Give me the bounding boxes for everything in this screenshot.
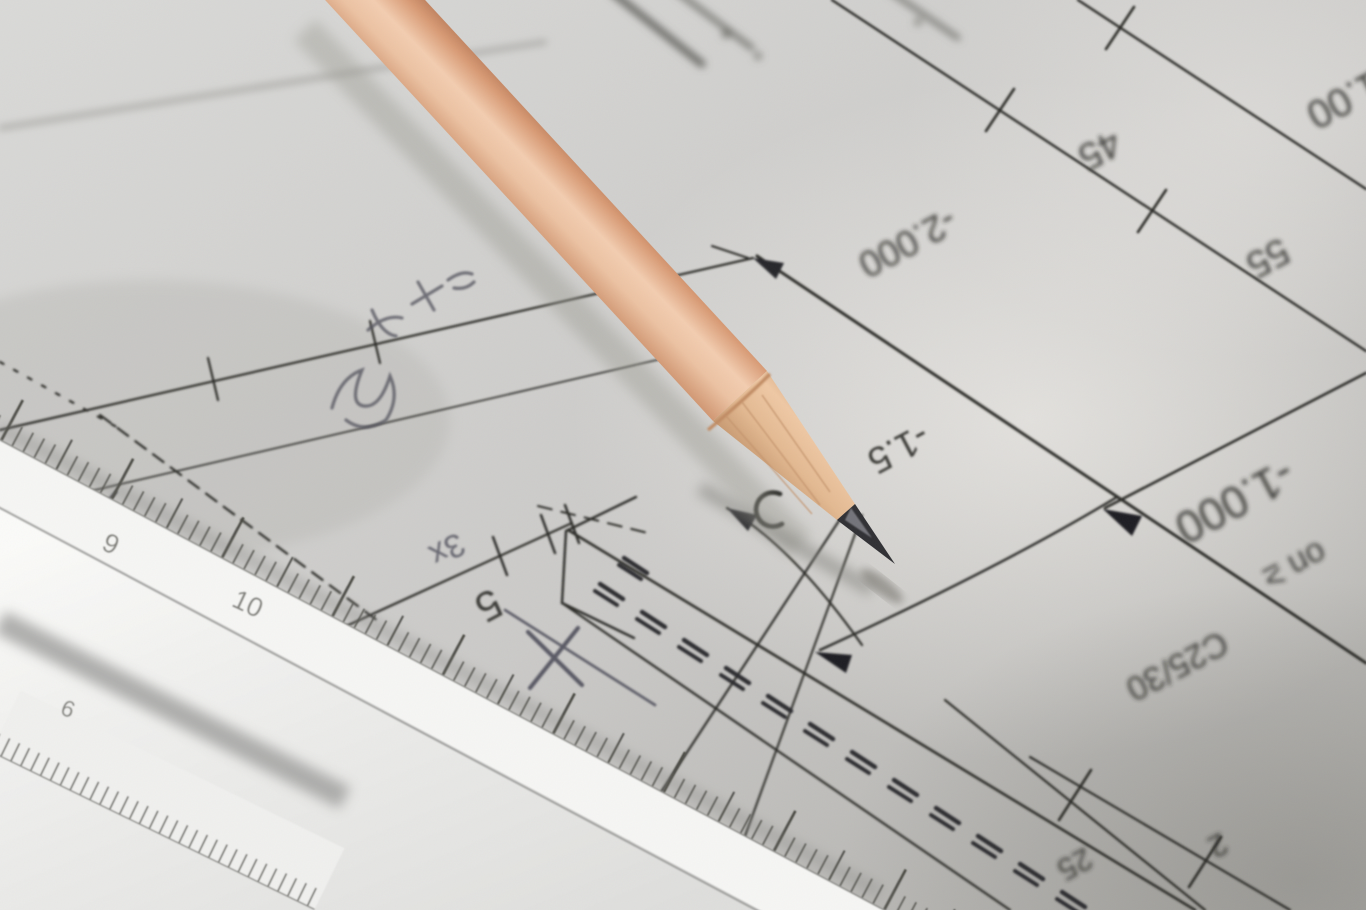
photo-blueprint-pencil-ruler: -1.5 5 3x 1.00 45 55 -2.000 -1.000 on ≥ … [0, 0, 1366, 910]
film-grain [0, 0, 1366, 910]
scene: -1.5 5 3x 1.00 45 55 -2.000 -1.000 on ≥ … [0, 0, 1366, 910]
